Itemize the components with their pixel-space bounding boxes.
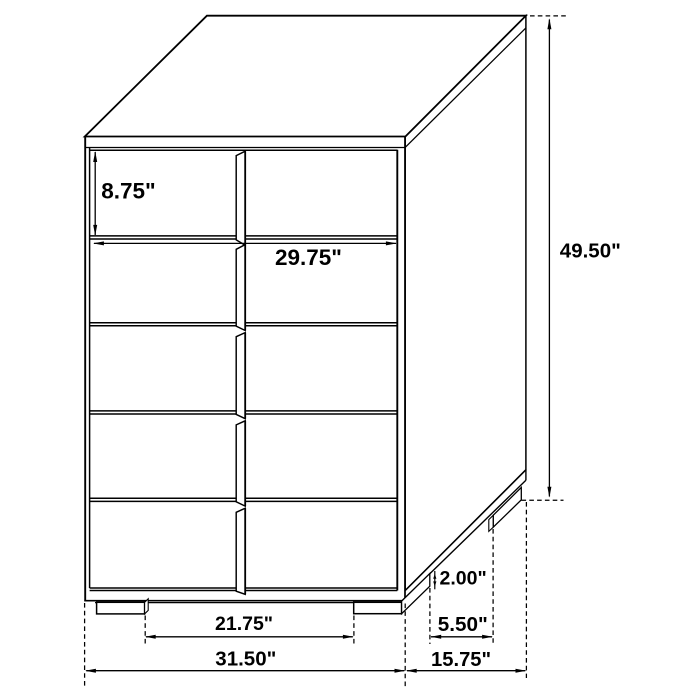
svg-text:8.75": 8.75": [101, 179, 155, 204]
svg-text:49.50": 49.50": [560, 240, 621, 263]
svg-text:21.75": 21.75": [215, 613, 273, 635]
svg-text:5.50": 5.50": [438, 613, 488, 636]
svg-text:2.00": 2.00": [440, 567, 487, 589]
svg-text:15.75": 15.75": [431, 649, 491, 671]
svg-text:31.50": 31.50": [215, 648, 276, 671]
svg-text:29.75": 29.75": [275, 245, 342, 270]
